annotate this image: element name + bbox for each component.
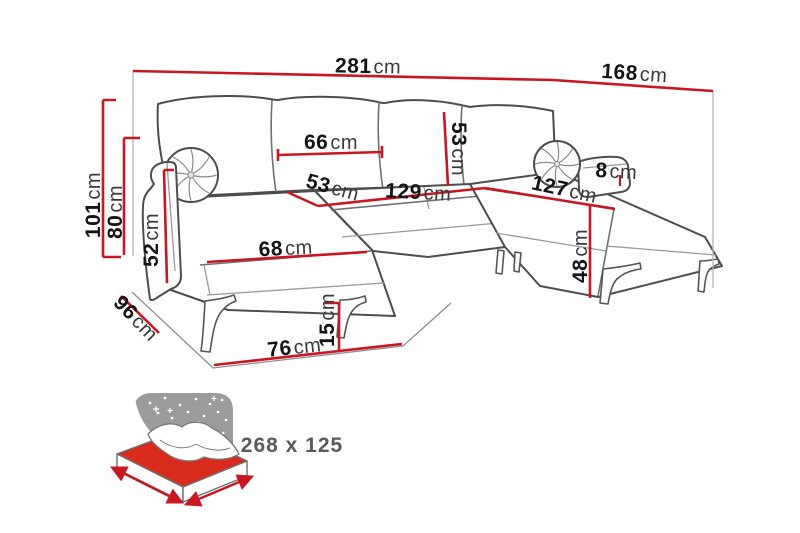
round-pillow-left-button [188, 172, 194, 178]
sofa-dimension-diagram: 281cm 168cm 101cm 80cm 52cm 96cm 66cm [0, 0, 800, 533]
dim-right-section-depth-label: 168cm [601, 60, 669, 88]
sleeping-area-label: 268 x 125 [241, 434, 343, 457]
dim-armrest-height-label: 80cm [104, 185, 127, 239]
middle-leg-b [514, 252, 521, 272]
dim-right-section-depth: 168cm [553, 60, 713, 91]
dim-armrest-panel-height-label: 52cm [140, 213, 163, 267]
dim-overall-height-label: 101cm [82, 172, 105, 238]
right-chaise-rear-leg [698, 259, 719, 292]
dim-armrest-width: 8cm [595, 159, 638, 186]
left-chaise-front-leg [201, 295, 236, 352]
dim-armrest-height: 80cm [104, 138, 140, 255]
dim-back-cushion-height-label: 53cm [447, 122, 470, 176]
dim-seat-width-label: 129cm [385, 179, 452, 205]
dim-armrest-width-label: 8cm [595, 159, 638, 184]
middle-leg-a [496, 250, 504, 274]
dim-leg-height: 15cm [316, 293, 339, 351]
dim-seat-height-label: 48cm [569, 229, 592, 283]
sofa-dimension-diagram-page: 281cm 168cm 101cm 80cm 52cm 96cm 66cm [0, 0, 800, 533]
left-chaise-mid-leg [337, 296, 366, 338]
sleeping-function-icon [113, 393, 251, 504]
dim-overall-width: 281cm [133, 54, 553, 80]
dim-left-chaise-seat-width-label: 68cm [258, 236, 313, 262]
dim-left-chaise-length-label: 76cm [266, 333, 322, 362]
dim-back-cushion-width-label: 66cm [304, 131, 358, 154]
dim-leg-height-label: 15cm [316, 293, 339, 347]
round-pillow-right-button [555, 162, 560, 167]
dim-back-cushion-height: 53cm [444, 112, 470, 186]
sofa-drawing [132, 96, 722, 368]
dim-overall-width-label: 281cm [335, 54, 402, 78]
